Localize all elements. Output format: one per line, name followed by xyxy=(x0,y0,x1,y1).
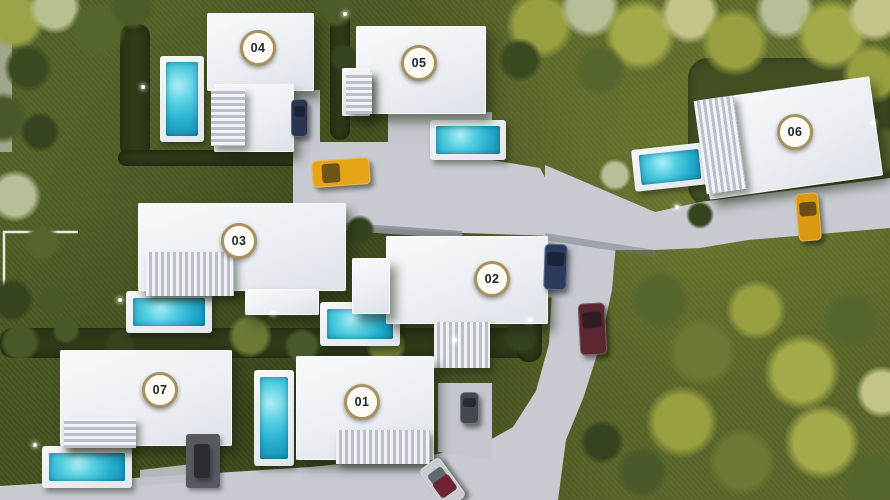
villa-02-building-0 xyxy=(386,236,548,324)
villa-03-pergola-0 xyxy=(146,252,234,296)
gold-car-villa-06-driveway xyxy=(795,192,822,242)
maroon-car-south-road-windshield xyxy=(582,312,602,329)
navy-car-villa-04-driveway xyxy=(291,99,308,137)
villa-07-pergola-0 xyxy=(64,418,136,448)
tree-canopy-36 xyxy=(630,270,690,330)
villa-05-pergola-0 xyxy=(346,72,372,114)
villa-06-pool xyxy=(639,149,702,185)
gold-car-villa-06-driveway-windshield xyxy=(799,201,816,217)
villa-03-pool xyxy=(133,298,205,326)
site-plan-canvas: 04050603020701 xyxy=(0,0,890,500)
villa-06-badge[interactable]: 06 xyxy=(777,114,813,150)
villa-07-badge-label: 07 xyxy=(153,383,168,397)
villa-02-badge-label: 02 xyxy=(485,272,500,286)
villa-02-badge[interactable]: 02 xyxy=(474,261,510,297)
villa-07-pool xyxy=(49,453,125,481)
villa-02-pergola-0 xyxy=(434,322,490,368)
villa-02-building-1 xyxy=(352,258,390,314)
tree-canopy-37 xyxy=(668,318,736,386)
tree-canopy-6 xyxy=(20,112,60,152)
tree-canopy-45 xyxy=(616,446,668,498)
garden-light-7 xyxy=(33,443,37,447)
tree-canopy-24 xyxy=(24,224,60,260)
navy-car-villa-02-driveway xyxy=(543,244,568,291)
garden-light-5 xyxy=(453,338,457,342)
villa-05-pool xyxy=(436,126,500,154)
villa-04-badge[interactable]: 04 xyxy=(240,30,276,66)
tree-canopy-18 xyxy=(574,44,626,96)
tree-canopy-21 xyxy=(599,159,631,191)
garden-light-0 xyxy=(141,85,145,89)
tree-canopy-35 xyxy=(345,215,375,245)
villa-04-badge-label: 04 xyxy=(251,41,266,55)
tree-canopy-3 xyxy=(4,44,52,92)
tree-canopy-39 xyxy=(764,334,840,410)
villa-03-badge-label: 03 xyxy=(232,234,247,248)
garden-light-6 xyxy=(118,298,122,302)
villa-03-badge[interactable]: 03 xyxy=(221,223,257,259)
villa-07-badge[interactable]: 07 xyxy=(142,372,178,408)
villa-01-pergola-0 xyxy=(336,430,430,464)
villa-06-badge-label: 06 xyxy=(788,125,803,139)
tree-canopy-41 xyxy=(646,386,718,458)
tree-canopy-26 xyxy=(37,285,67,315)
tree-canopy-28 xyxy=(228,314,272,358)
navy-car-villa-04-driveway-windshield xyxy=(294,106,306,117)
tree-canopy-19 xyxy=(498,38,542,82)
tree-canopy-22 xyxy=(686,201,714,229)
garden-light-4 xyxy=(271,311,275,315)
garden-light-8 xyxy=(528,318,532,322)
navy-car-villa-02-driveway-windshield xyxy=(547,252,564,266)
villa-05-badge[interactable]: 05 xyxy=(401,45,437,81)
villa-04-pool xyxy=(166,62,198,136)
tree-canopy-34 xyxy=(52,316,80,344)
villa-07-patio-furniture xyxy=(194,444,210,478)
tree-canopy-38 xyxy=(726,280,786,340)
villa-01-pool xyxy=(260,377,288,459)
tree-canopy-27 xyxy=(0,322,40,362)
villa-05-badge-label: 05 xyxy=(412,56,427,70)
tree-canopy-42 xyxy=(708,428,776,496)
grey-car-villa-01-driveway-windshield xyxy=(463,398,476,408)
gold-car-plaza-windshield xyxy=(322,163,341,183)
tree-canopy-40 xyxy=(822,290,882,350)
villa-01-badge[interactable]: 01 xyxy=(344,384,380,420)
garden-light-3 xyxy=(675,205,679,209)
grey-car-villa-01-driveway xyxy=(460,392,479,424)
gold-car-plaza xyxy=(311,157,371,188)
garden-light-2 xyxy=(871,121,875,125)
villa-04-pergola-0 xyxy=(211,88,245,146)
villa-03-building-1 xyxy=(245,289,319,315)
villa-01-badge-label: 01 xyxy=(355,395,370,409)
maroon-car-south-road xyxy=(578,302,608,355)
tree-canopy-46 xyxy=(580,420,624,464)
garden-light-1 xyxy=(343,12,347,16)
